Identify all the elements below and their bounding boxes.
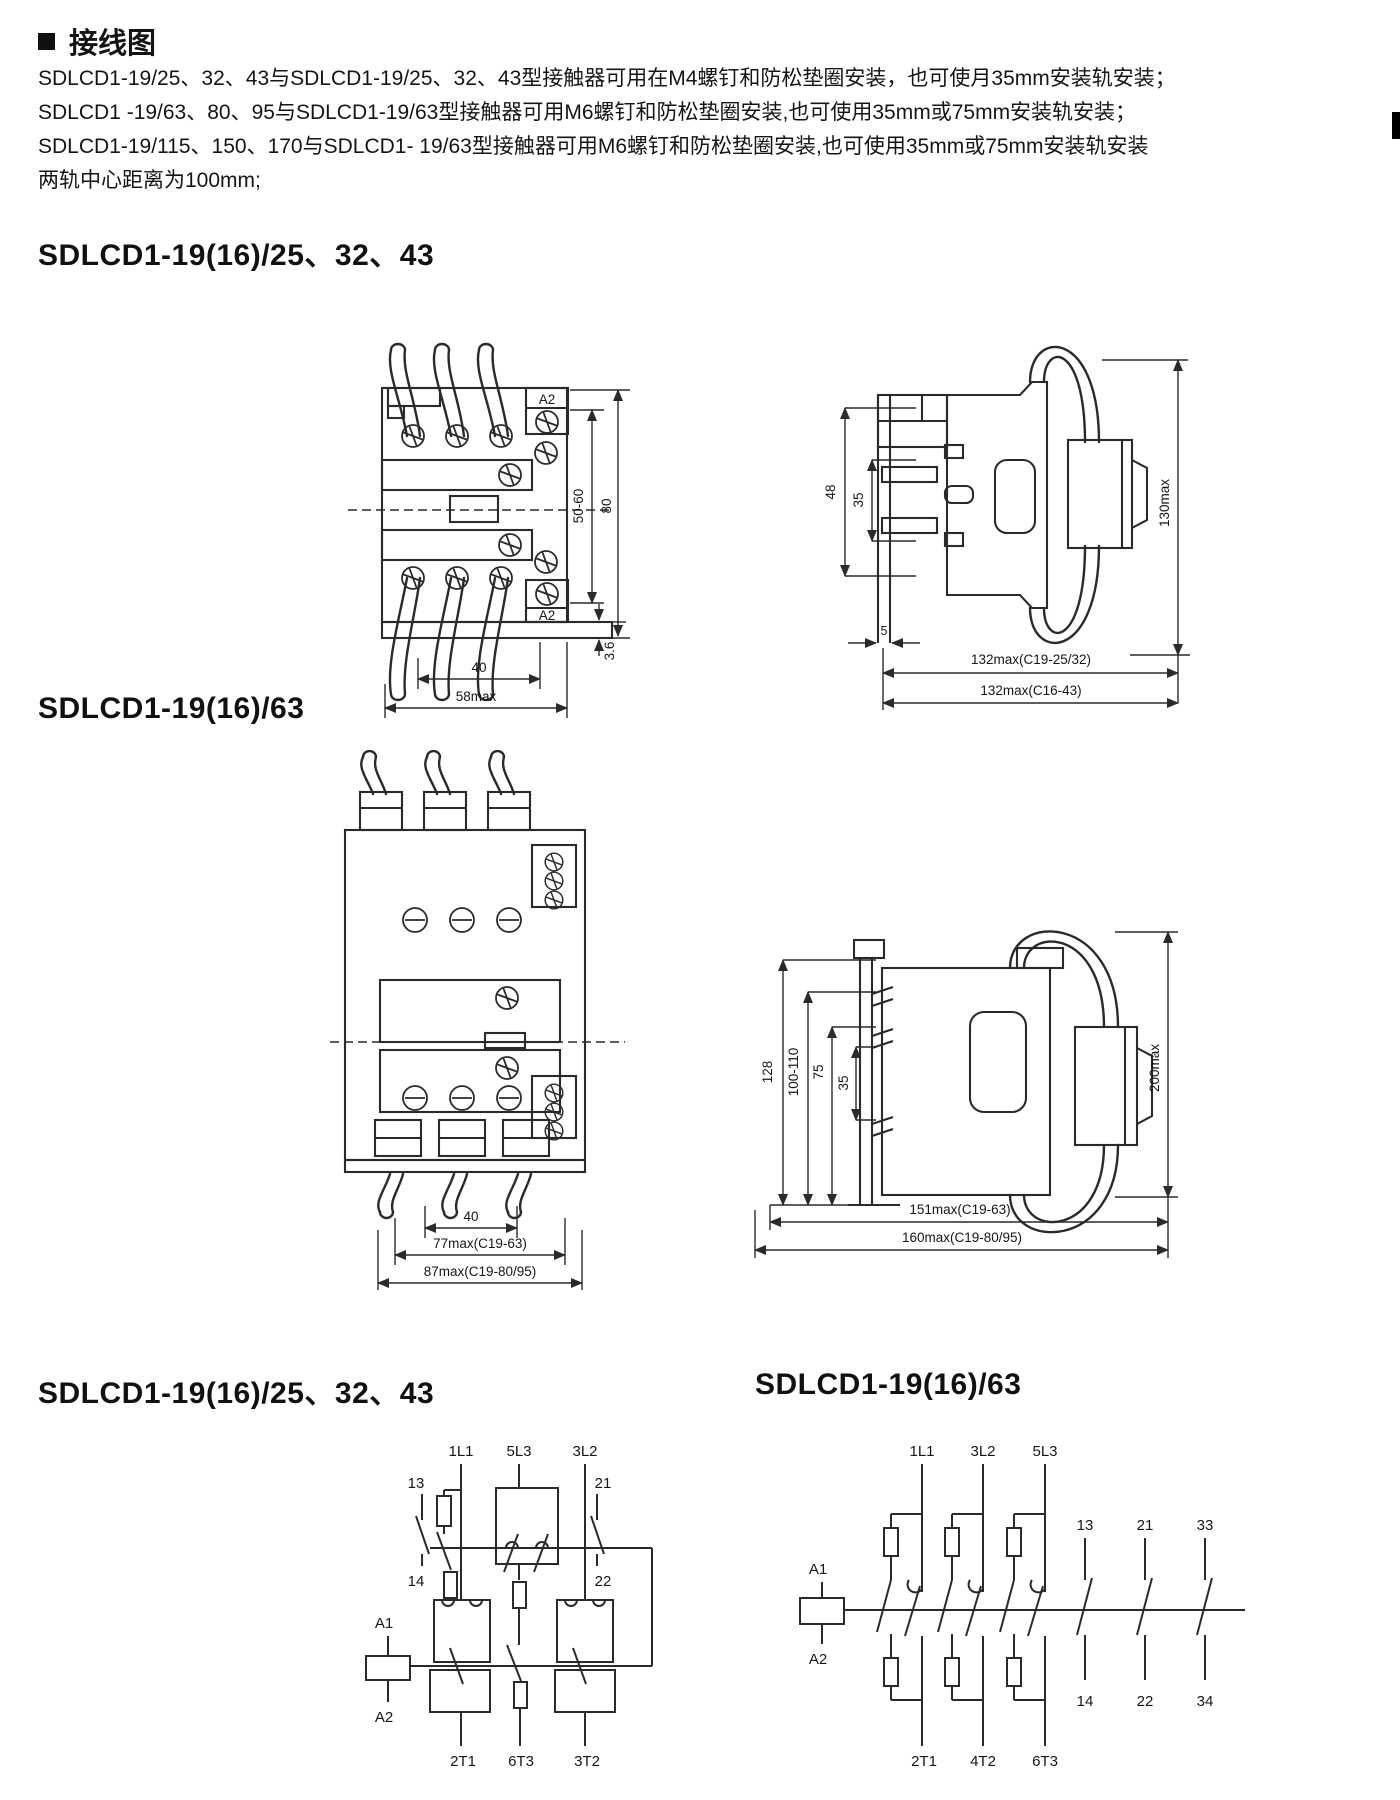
page-title: 接线图 xyxy=(38,20,156,62)
intro-line: 两轨中心距离为100mm; xyxy=(38,164,1188,198)
dim-label-48: 48 xyxy=(823,484,838,499)
page-title-text: 接线图 xyxy=(69,20,156,62)
dim-label-151max: 151max(C19-63) xyxy=(909,1202,1010,1217)
section-title-circuit-25-32-43: SDLCD1-19(16)/25、32、43 xyxy=(38,1368,434,1412)
dim-label-100-110: 100-110 xyxy=(786,1048,801,1097)
aux-label-22: 22 xyxy=(1137,1693,1154,1710)
top-wires xyxy=(390,344,508,436)
dim-label-40: 40 xyxy=(471,660,486,675)
intro-line: SDLCD1 -19/63、80、95与SDLCD1-19/63型接触器可用M6… xyxy=(38,96,1188,130)
side-view-63-drawing: 128 100-110 75 35 200max 151max(C19-63) … xyxy=(660,790,1200,1290)
dim-label-35: 35 xyxy=(851,492,866,507)
circuit-lines xyxy=(800,1464,1245,1746)
dim-label-75: 75 xyxy=(811,1064,826,1079)
front-view-25-32-43-drawing: A2 A2 50-60 80 3.6 40 58max xyxy=(320,290,640,730)
terminal-label-5l3: 5L3 xyxy=(1032,1443,1057,1460)
screw-terminals xyxy=(402,411,558,605)
coil-label-a1: A1 xyxy=(809,1561,827,1578)
dim-label-132max-c16: 132max(C16-43) xyxy=(980,683,1081,698)
coil-label-a1: A1 xyxy=(375,1615,393,1632)
circuit-lines xyxy=(366,1464,652,1746)
front-view-63-drawing: 40 77max(C19-63) 87max(C19-80/95) xyxy=(320,750,640,1290)
wire-loops xyxy=(1030,347,1099,643)
dim-label-5: 5 xyxy=(881,624,888,638)
wiring-schematic-25-32-43: 1L1 5L3 3L2 13 14 21 22 A1 A2 2T1 6T3 3T… xyxy=(300,1430,700,1790)
screw-terminals xyxy=(403,853,563,1140)
contactor-front-body xyxy=(345,792,585,1172)
aux-label-34: 34 xyxy=(1197,1693,1214,1710)
side-view-25-32-43-drawing: 48 35 5 130max 132max(C19-25/32) 132max(… xyxy=(700,290,1200,730)
aux-label-14: 14 xyxy=(408,1573,425,1590)
section-title-dims-63: SDLCD1-19(16)/63 xyxy=(38,692,304,726)
dim-label-50-60: 50-60 xyxy=(571,489,586,524)
dim-label-77max: 77max(C19-63) xyxy=(433,1236,527,1251)
aux-label-21: 21 xyxy=(1137,1517,1154,1534)
terminal-label-5l3: 5L3 xyxy=(506,1443,531,1460)
aux-label-21: 21 xyxy=(595,1475,612,1492)
dim-label-40: 40 xyxy=(463,1209,478,1224)
dim-label-80: 80 xyxy=(599,498,614,513)
dim-label-200max: 200max xyxy=(1147,1044,1162,1092)
terminal-label-1l1: 1L1 xyxy=(448,1443,473,1460)
terminal-label-6t3: 6T3 xyxy=(1032,1753,1058,1770)
section-title-dims-25-32-43: SDLCD1-19(16)/25、32、43 xyxy=(38,230,434,274)
terminal-label-6t3: 6T3 xyxy=(508,1753,534,1770)
contactor-side-body xyxy=(878,382,1147,643)
dim-label-3-6: 3.6 xyxy=(602,642,617,661)
terminal-label-2t1: 2T1 xyxy=(911,1753,937,1770)
coil-label-a2: A2 xyxy=(809,1651,827,1668)
aux-label-33: 33 xyxy=(1197,1517,1214,1534)
dim-label-132max-c19: 132max(C19-25/32) xyxy=(971,652,1091,667)
aux-label-13: 13 xyxy=(408,1475,425,1492)
section-square-bullet xyxy=(38,33,55,50)
terminal-label-4t2: 4T2 xyxy=(970,1753,996,1770)
contactor-side-body xyxy=(848,940,1152,1205)
intro-paragraph: SDLCD1-19/25、32、43与SDLCD1-19/25、32、43型接触… xyxy=(38,62,1188,198)
intro-line: SDLCD1-19/115、150、170与SDLCD1- 19/63型接触器可… xyxy=(38,130,1188,164)
aux-label-22: 22 xyxy=(595,1573,612,1590)
dim-label-128: 128 xyxy=(760,1061,775,1084)
page-edge-mark xyxy=(1392,112,1400,139)
dim-label-58max: 58max xyxy=(456,689,497,704)
aux-label-13: 13 xyxy=(1077,1517,1094,1534)
coil-label-a2: A2 xyxy=(375,1709,393,1726)
terminal-label-a2-bottom: A2 xyxy=(539,608,556,623)
terminal-label-3t2: 3T2 xyxy=(574,1753,600,1770)
bottom-wires xyxy=(378,1174,531,1218)
terminal-label-3l2: 3L2 xyxy=(572,1443,597,1460)
dim-label-87max: 87max(C19-80/95) xyxy=(424,1264,537,1279)
intro-line: SDLCD1-19/25、32、43与SDLCD1-19/25、32、43型接触… xyxy=(38,62,1188,96)
terminal-label-a2-top: A2 xyxy=(539,392,556,407)
dim-label-130max: 130max xyxy=(1157,479,1172,527)
dim-label-35: 35 xyxy=(836,1075,851,1090)
terminal-label-2t1: 2T1 xyxy=(450,1753,476,1770)
wiring-schematic-63: 1L1 3L2 5L3 13 21 33 14 22 34 A1 A2 2T1 … xyxy=(740,1430,1300,1790)
terminal-label-1l1: 1L1 xyxy=(909,1443,934,1460)
section-title-circuit-63: SDLCD1-19(16)/63 xyxy=(755,1368,1021,1402)
dim-label-160max: 160max(C19-80/95) xyxy=(902,1230,1022,1245)
terminal-label-3l2: 3L2 xyxy=(970,1443,995,1460)
top-wires xyxy=(361,751,514,794)
aux-label-14: 14 xyxy=(1077,1693,1094,1710)
